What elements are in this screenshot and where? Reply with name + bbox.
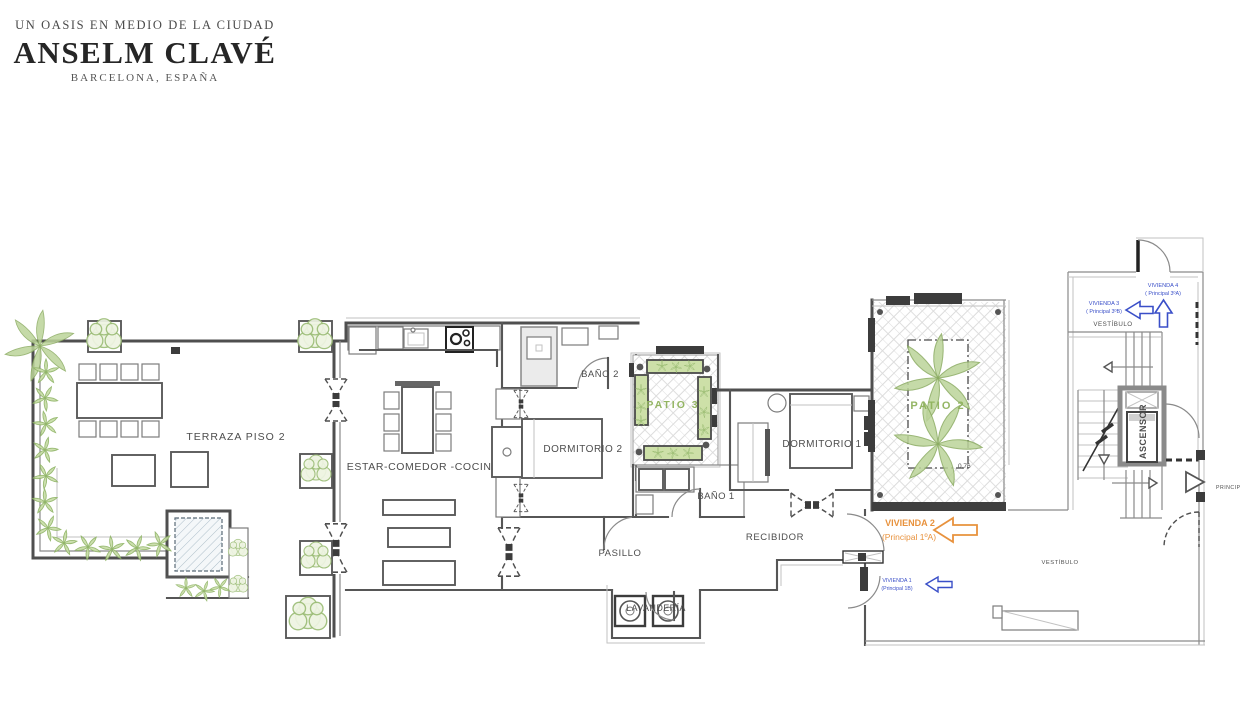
bano1-door-arc bbox=[672, 489, 700, 517]
bench-3 bbox=[383, 561, 455, 585]
bano2-sink-icon bbox=[599, 326, 618, 339]
label-bano1: BAÑO 1 bbox=[697, 491, 734, 502]
star-plant-icon bbox=[191, 578, 217, 603]
room-terraza: TERRAZA PISO 2 bbox=[5, 310, 347, 638]
room-pasillo: LAVANDERÍA PASILLO RECIBIDOR bbox=[598, 532, 843, 643]
annotation-vivienda4: VIVIENDA 4 ( Principal 3ºA) bbox=[1145, 283, 1181, 327]
annotation-vivienda1: VIVIENDA 1 (Principal 1B) bbox=[881, 577, 952, 592]
floor-plan: TERRAZA PISO 2 bbox=[0, 0, 1240, 720]
vivienda4-up-arrow-icon bbox=[1155, 300, 1172, 327]
terraza-spa bbox=[167, 511, 248, 603]
side-table-icon bbox=[768, 394, 786, 412]
entry-door-arc-1 bbox=[847, 514, 884, 551]
label-terraza: TERRAZA PISO 2 bbox=[186, 431, 285, 443]
room-dormitorio1: DORMITORIO 1 bbox=[718, 355, 874, 517]
dorm2-closet-b bbox=[496, 477, 520, 517]
terraza-dining-table bbox=[77, 364, 162, 437]
direction-triangle-icon bbox=[1186, 472, 1204, 492]
room-patio2: PATIO 2 0,76 bbox=[868, 293, 1009, 511]
bano1-sink-icon bbox=[639, 469, 663, 490]
label-principal-edge: PRINCIPAL bbox=[1216, 485, 1240, 491]
bench-1 bbox=[383, 500, 455, 515]
label-lavanderia: LAVANDERÍA bbox=[626, 603, 686, 613]
label-pasillo: PASILLO bbox=[598, 548, 641, 559]
label-patio3: PATIO 3 bbox=[646, 399, 699, 411]
label-vivienda1: VIVIENDA 1 bbox=[882, 578, 911, 584]
stairs-lower-flight bbox=[1112, 470, 1162, 518]
annotation-vivienda2: VIVIENDA 2 (Principal 1ºA) bbox=[882, 518, 977, 542]
stove-icon bbox=[446, 327, 473, 352]
vivienda1-left-arrow-icon bbox=[926, 577, 952, 592]
label-estar: ESTAR-COMEDOR -COCINA bbox=[347, 461, 499, 473]
entry-door-leaf bbox=[843, 551, 883, 563]
edge-door-arc bbox=[1164, 512, 1199, 547]
label-vivienda3: VIVIENDA 3 bbox=[1089, 301, 1119, 307]
bano1-toilet-icon bbox=[636, 495, 653, 514]
terraza-table-b bbox=[171, 452, 208, 487]
terraza-table-a bbox=[112, 455, 155, 486]
ramp bbox=[993, 606, 1078, 630]
label-patio2: PATIO 2 bbox=[910, 400, 965, 412]
room-dormitorio2: BAÑO 2 DORMITORIO 2 bbox=[492, 318, 640, 549]
stair-door-arc bbox=[1166, 404, 1199, 438]
terraza-fixture bbox=[171, 347, 180, 354]
stairs-upper-flight bbox=[1104, 332, 1153, 388]
label-vivienda1-detail: (Principal 1B) bbox=[881, 586, 912, 592]
dorm2-dresser bbox=[492, 427, 522, 477]
label-dormitorio2: DORMITORIO 2 bbox=[543, 444, 622, 455]
room-bano1: BAÑO 1 bbox=[633, 465, 744, 517]
estar-dining-table bbox=[384, 381, 451, 453]
stairs-down-arrow bbox=[1099, 455, 1109, 464]
dorm2-door-arc bbox=[604, 517, 636, 549]
label-vivienda3-detail: ( Principal 3ºB) bbox=[1086, 309, 1122, 315]
dorm1-wardrobe bbox=[738, 423, 770, 482]
kitchen-counter bbox=[348, 326, 500, 366]
label-vivienda2: VIVIENDA 2 bbox=[885, 518, 935, 528]
estar-pasillo-door bbox=[498, 528, 520, 576]
page: UN OASIS EN MEDIO DE LA CIUDAD ANSELM CL… bbox=[0, 0, 1240, 720]
label-bano2: BAÑO 2 bbox=[581, 369, 619, 380]
sink-icon bbox=[404, 328, 428, 348]
vivienda2-left-arrow-icon bbox=[934, 518, 977, 542]
label-recibidor: RECIBIDOR bbox=[746, 532, 804, 543]
label-vivienda2-detail: (Principal 1ºA) bbox=[882, 532, 936, 542]
vivienda-entry-doors bbox=[843, 510, 884, 645]
toilet-icon bbox=[562, 328, 588, 345]
bed-dorm1 bbox=[790, 394, 852, 468]
top-door-arc bbox=[1138, 240, 1170, 272]
star-plant-icon bbox=[176, 578, 197, 598]
label-dimension: 0,76 bbox=[958, 463, 971, 470]
label-vestibulo-lower: VESTÍBULO bbox=[1041, 559, 1078, 566]
label-vivienda4-detail: ( Principal 3ºA) bbox=[1145, 291, 1181, 297]
recibidor-double-door bbox=[791, 493, 833, 517]
label-vivienda4: VIVIENDA 4 bbox=[1148, 283, 1178, 289]
label-dormitorio1: DORMITORIO 1 bbox=[782, 439, 861, 450]
dorm2-closet-a bbox=[496, 389, 520, 419]
elevator: ASCENSOR bbox=[1120, 388, 1164, 464]
vivienda3-left-arrow-icon bbox=[1126, 302, 1153, 319]
label-ascensor: ASCENSOR bbox=[1138, 404, 1148, 459]
nightstand bbox=[854, 396, 869, 411]
bano1-sink-icon bbox=[665, 469, 689, 490]
room-patio3: PATIO 3 bbox=[629, 346, 720, 467]
label-vestibulo-upper: VESTÍBULO bbox=[1093, 321, 1132, 328]
annotation-vivienda3: VIVIENDA 3 ( Principal 3ºB) bbox=[1086, 301, 1153, 319]
bench-2 bbox=[388, 528, 450, 547]
